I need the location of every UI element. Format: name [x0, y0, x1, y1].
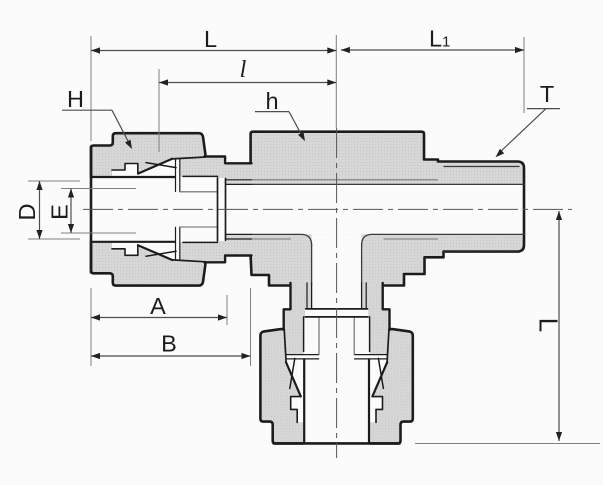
- svg-text:L: L: [429, 26, 442, 52]
- svg-text:1: 1: [442, 34, 450, 51]
- svg-text:T: T: [540, 81, 554, 107]
- svg-text:l: l: [240, 57, 247, 83]
- svg-text:L: L: [204, 26, 217, 52]
- svg-text:L: L: [534, 318, 564, 332]
- svg-text:H: H: [67, 86, 84, 112]
- svg-text:h: h: [265, 88, 278, 114]
- svg-text:E: E: [47, 204, 73, 220]
- svg-text:A: A: [150, 293, 166, 319]
- svg-text:B: B: [161, 331, 177, 357]
- svg-text:D: D: [14, 204, 40, 221]
